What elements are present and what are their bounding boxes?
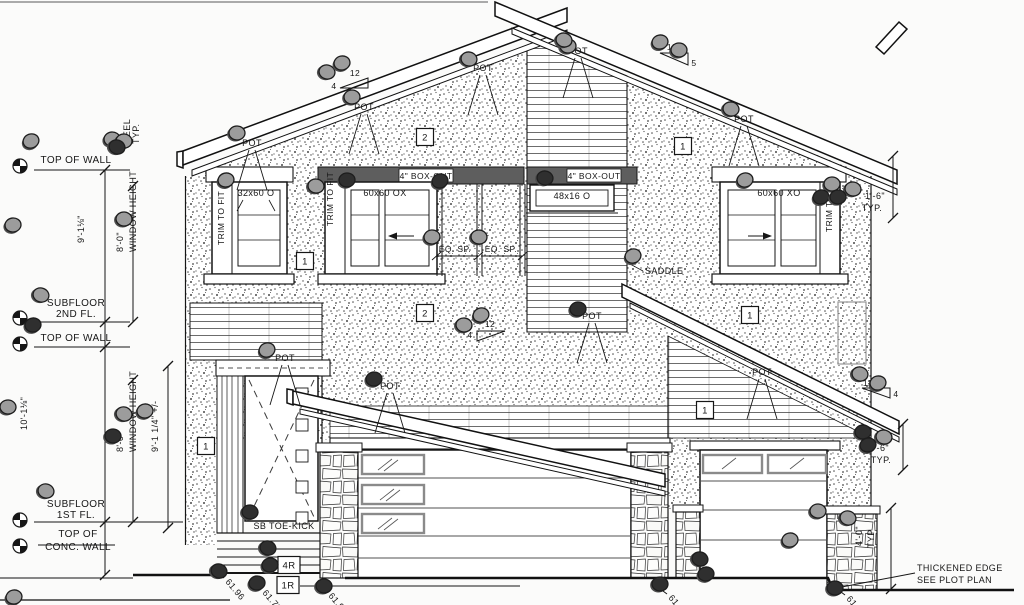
spot-elevation: 61.69 (844, 594, 867, 605)
anno-text: 4 (893, 389, 898, 399)
spot-elevation: 61.69 (666, 593, 689, 605)
anno-text: WINDOW HEIGHT (128, 171, 138, 252)
anno-text: 32x60 O (238, 188, 275, 198)
anno-text: TRIM TO FIT (216, 191, 226, 245)
pot-label: POT (275, 353, 295, 363)
keynote-number: 1 (747, 311, 753, 322)
marker-blob (246, 575, 266, 593)
anno-text: 1'-6" (865, 191, 885, 201)
keynote-number: 1 (302, 257, 308, 268)
elevation-drawing: TOP OF WALL12"HEELTYP.9'-1⅛"8'-0"WINDOW … (0, 0, 1024, 605)
keynote-number: 1 (702, 406, 708, 417)
keynote-number: 1 (680, 142, 686, 153)
anno-text: 4 (331, 81, 336, 91)
garage-header-right (690, 441, 840, 450)
anno-text: THICKENED EDGE (917, 563, 1003, 573)
grade-line (345, 578, 1014, 590)
anno-text: 9'-1⅛" (76, 215, 86, 243)
garage-door-lites (362, 455, 424, 533)
keynote-number: 2 (422, 133, 428, 144)
anno-text: 4'-0" (854, 526, 864, 546)
keynote-number: 1 (203, 442, 209, 453)
anno-text: TOP OF WALL (41, 155, 112, 166)
pot-label: POT (380, 381, 400, 391)
anno-text: 10'-1⅛" (19, 397, 29, 430)
door-side-trim (217, 376, 243, 533)
marker-blob (3, 589, 23, 605)
anno-text: 4" BOX-OUT (568, 171, 621, 181)
anno-text: SUBFLOOR (47, 298, 105, 309)
garage-door-single (700, 450, 827, 578)
spot-elevation: 61.96 (223, 577, 246, 602)
upper-right-roof-stub (876, 22, 907, 54)
pot-label: POT (242, 138, 262, 148)
entry-siding-band (190, 303, 322, 360)
anno-text: TYP (866, 529, 876, 548)
anno-text: SEE PLOT PLAN (917, 575, 992, 585)
anno-text: SADDLE (645, 266, 683, 276)
spot-elevation: 61.96 (326, 591, 349, 605)
anno-text: TOP OF (58, 529, 97, 540)
marker-blob (207, 561, 229, 582)
anno-text: CONC. WALL (45, 542, 111, 553)
keynote-number: 1R (282, 581, 295, 592)
anno-text: 8'-0" (115, 232, 125, 252)
left-eave-endcap (177, 151, 183, 168)
anno-text: EQ. SP. (485, 244, 517, 254)
anno-text: 60x60 XO (757, 188, 800, 198)
anno-text: TYP. (871, 455, 891, 465)
elevation-canvas: TOP OF WALL12"HEELTYP.9'-1⅛"8'-0"WINDOW … (0, 0, 1024, 605)
marker-blob (19, 132, 41, 153)
anno-text: SB TOE-KICK (253, 521, 314, 531)
marker-blob (2, 217, 22, 235)
marker-blob (313, 578, 332, 595)
pot-label: POT (734, 114, 754, 124)
anno-text: TOP OF WALL (41, 333, 112, 344)
anno-text: SUBFLOOR (47, 499, 105, 510)
anno-text: EQ. SP. (439, 244, 471, 254)
pot-label: POT (354, 102, 374, 112)
anno-text: 60x60 OX (363, 188, 406, 198)
pot-label: POT (752, 367, 772, 377)
anno-text: 1ST FL. (57, 510, 95, 521)
anno-text: 48x16 O (554, 191, 591, 201)
keynote-number: 2 (422, 309, 428, 320)
marker-blob (0, 399, 16, 416)
anno-text: TRIM TO FIT (325, 172, 335, 226)
anno-text: 12 (350, 68, 360, 78)
anno-text: TYP. (862, 203, 882, 213)
pot-label: POT (473, 63, 493, 73)
keynote-number: 4R (283, 561, 296, 572)
anno-text: 2ND FL. (56, 309, 96, 320)
anno-text: 5 (691, 58, 696, 68)
